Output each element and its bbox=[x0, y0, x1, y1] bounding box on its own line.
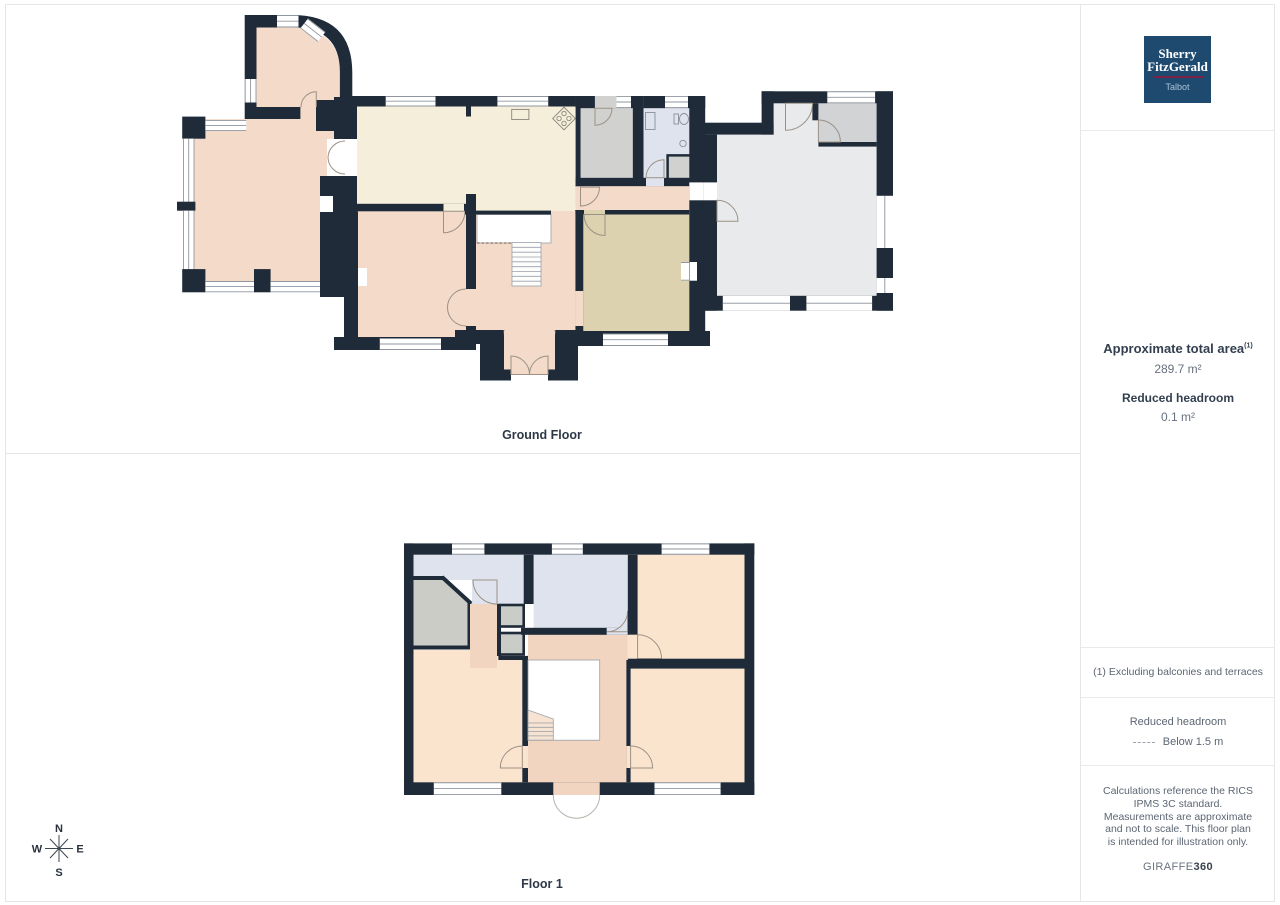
svg-text:E: E bbox=[76, 844, 83, 856]
svg-text:S: S bbox=[55, 867, 62, 879]
svg-text:N: N bbox=[55, 823, 63, 835]
svg-text:W: W bbox=[32, 844, 43, 856]
